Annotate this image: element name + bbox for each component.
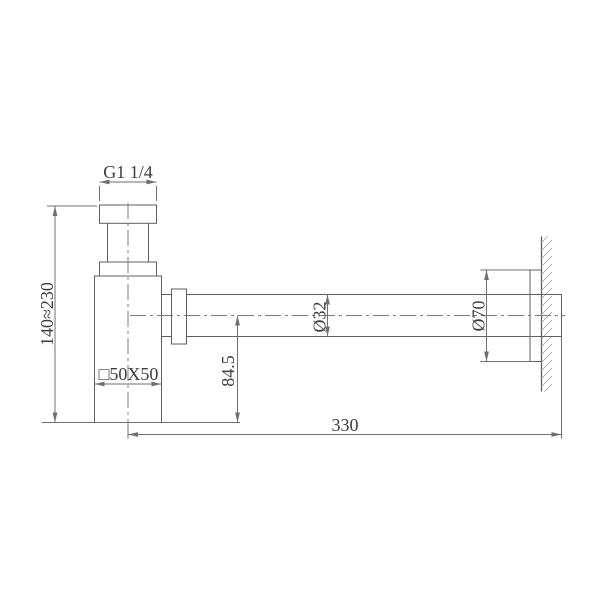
label-pipe-diameter: Ø32	[310, 302, 330, 333]
drawing-svg: G1 1/4 140≈230 □50X50 84.5 Ø32 Ø70 330	[0, 0, 600, 600]
dimension-labels: G1 1/4 140≈230 □50X50 84.5 Ø32 Ø70 330	[37, 162, 489, 435]
wall-hatching	[542, 237, 553, 392]
outlet-nut	[172, 289, 187, 344]
label-thread-size: G1 1/4	[103, 162, 153, 182]
bottle-trap-technical-drawing: G1 1/4 140≈230 □50X50 84.5 Ø32 Ø70 330	[0, 0, 600, 600]
label-flange-diameter: Ø70	[469, 301, 489, 332]
centerlines	[128, 203, 565, 424]
label-outlet-drop: 84.5	[218, 355, 238, 387]
dim-thread	[100, 182, 157, 201]
dim-height	[42, 206, 240, 423]
label-body-section: □50X50	[99, 364, 159, 384]
label-height-range: 140≈230	[37, 282, 57, 346]
label-wall-distance: 330	[332, 415, 359, 435]
